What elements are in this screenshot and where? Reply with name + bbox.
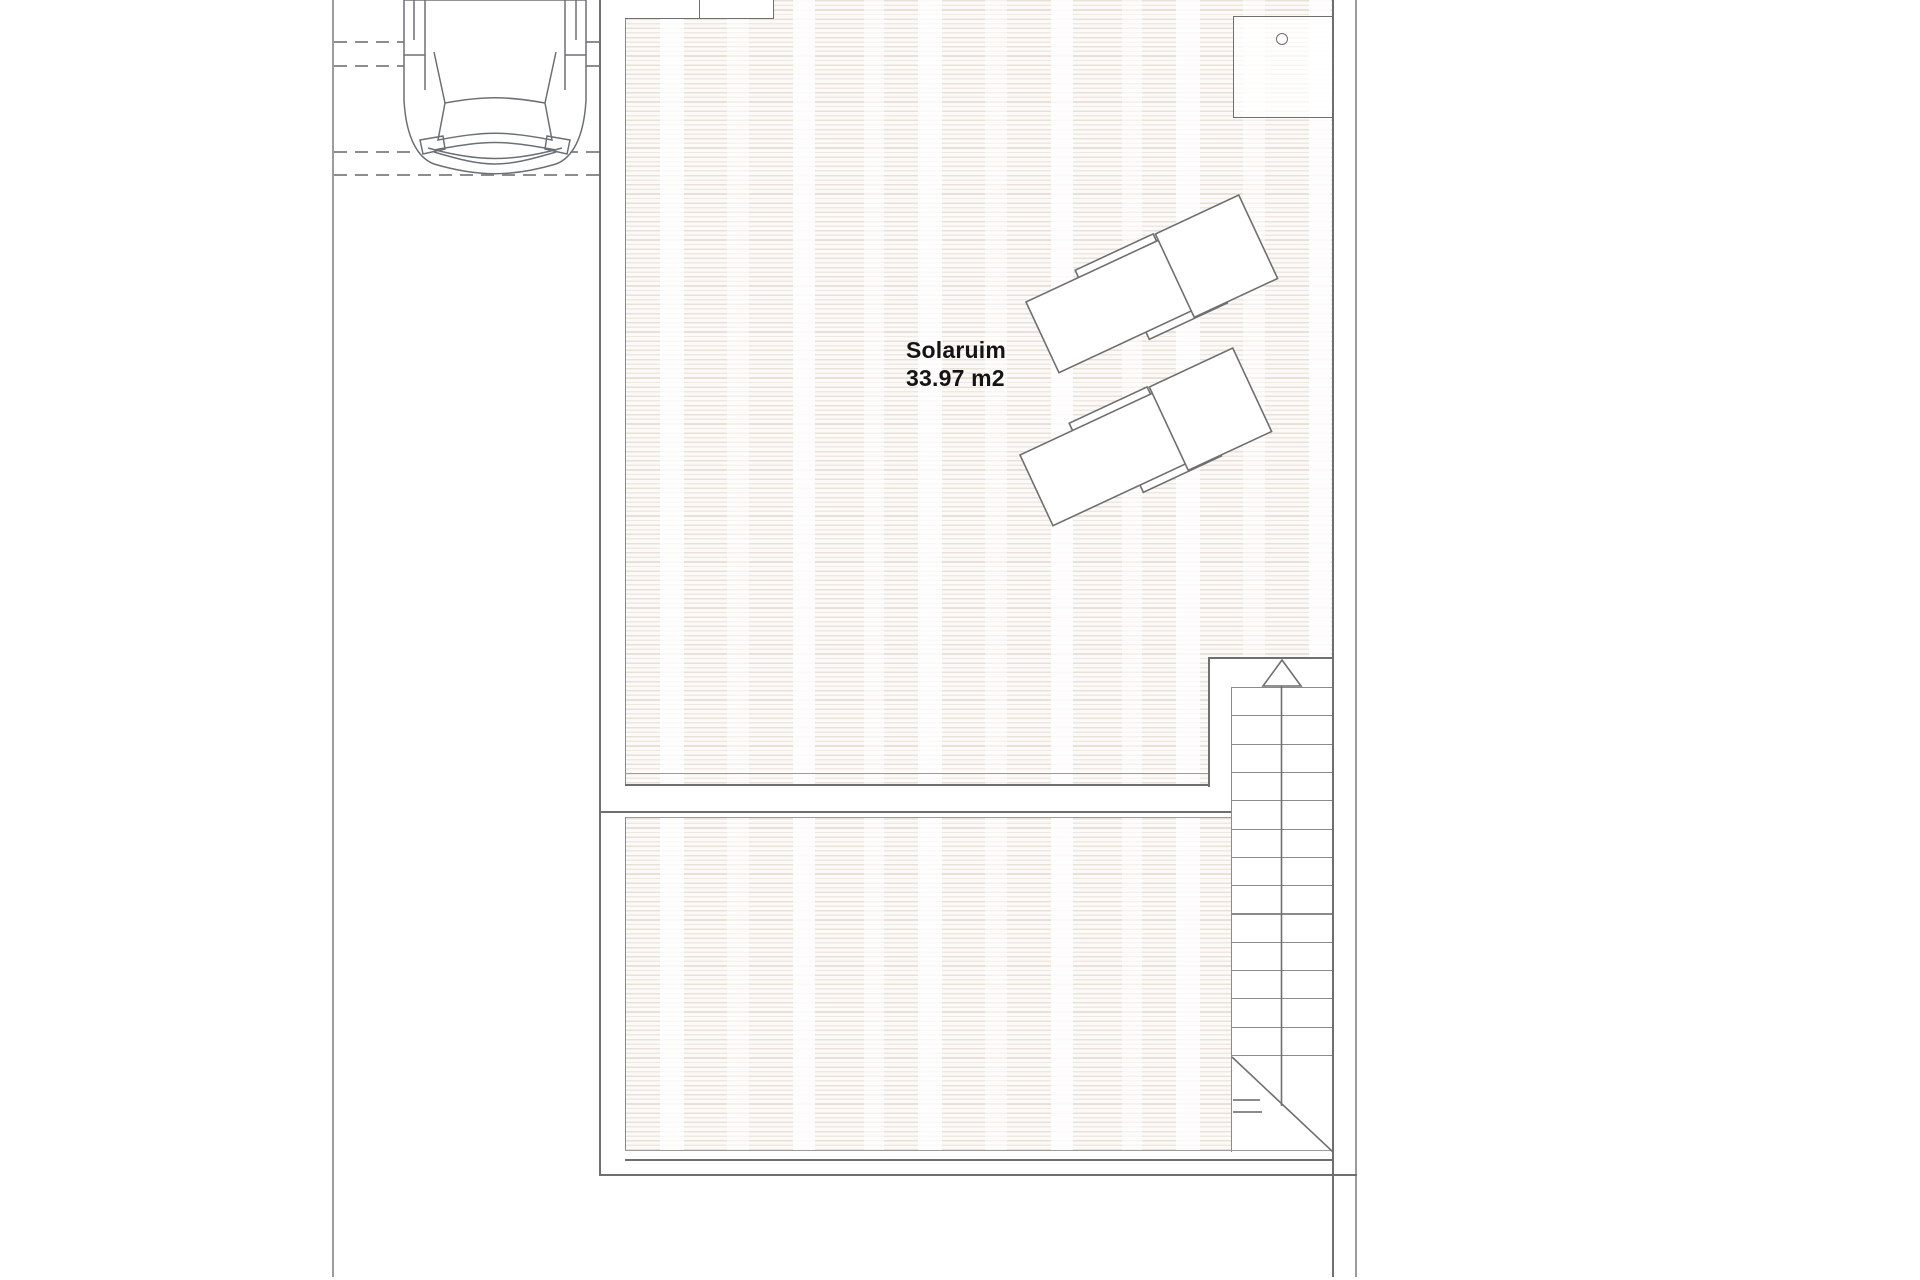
- stair-break-line: [1232, 1057, 1333, 1152]
- car-icon: [404, 0, 586, 174]
- plan-objects-layer: [0, 0, 1920, 1280]
- stair-up-arrow-icon: [1263, 660, 1301, 1106]
- sun-lounger: [1017, 347, 1272, 533]
- sun-lounger: [1023, 194, 1278, 380]
- floor-plan: Solaruim 33.97 m2: [0, 0, 1920, 1280]
